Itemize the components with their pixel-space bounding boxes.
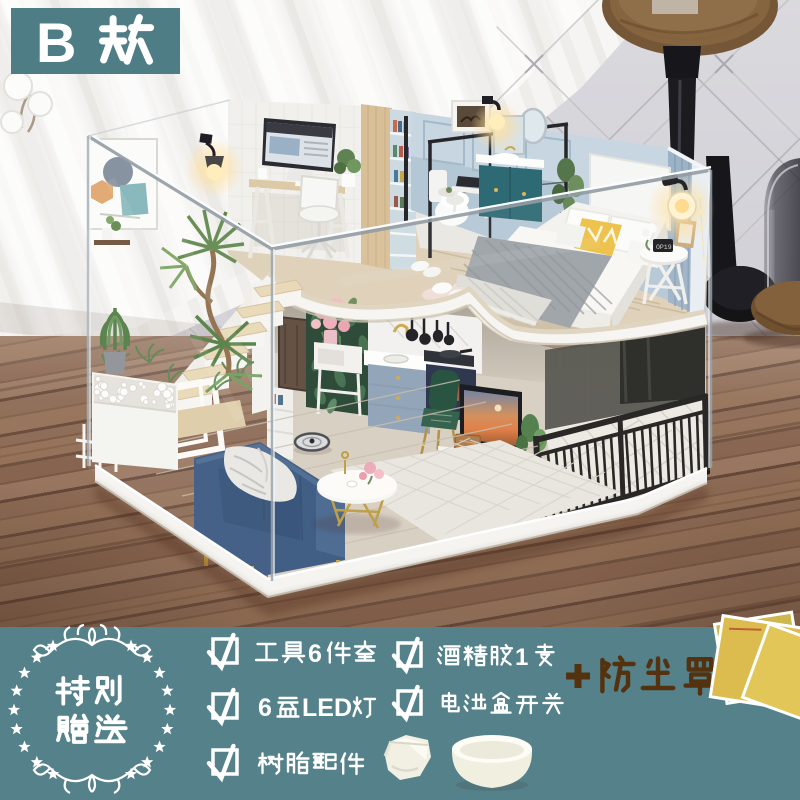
svg-text:1: 1 [515, 644, 528, 671]
svg-text:B: B [36, 11, 76, 74]
svg-text:6: 6 [308, 640, 322, 668]
svg-text:6: 6 [258, 694, 272, 722]
svg-text:LED: LED [302, 694, 352, 722]
